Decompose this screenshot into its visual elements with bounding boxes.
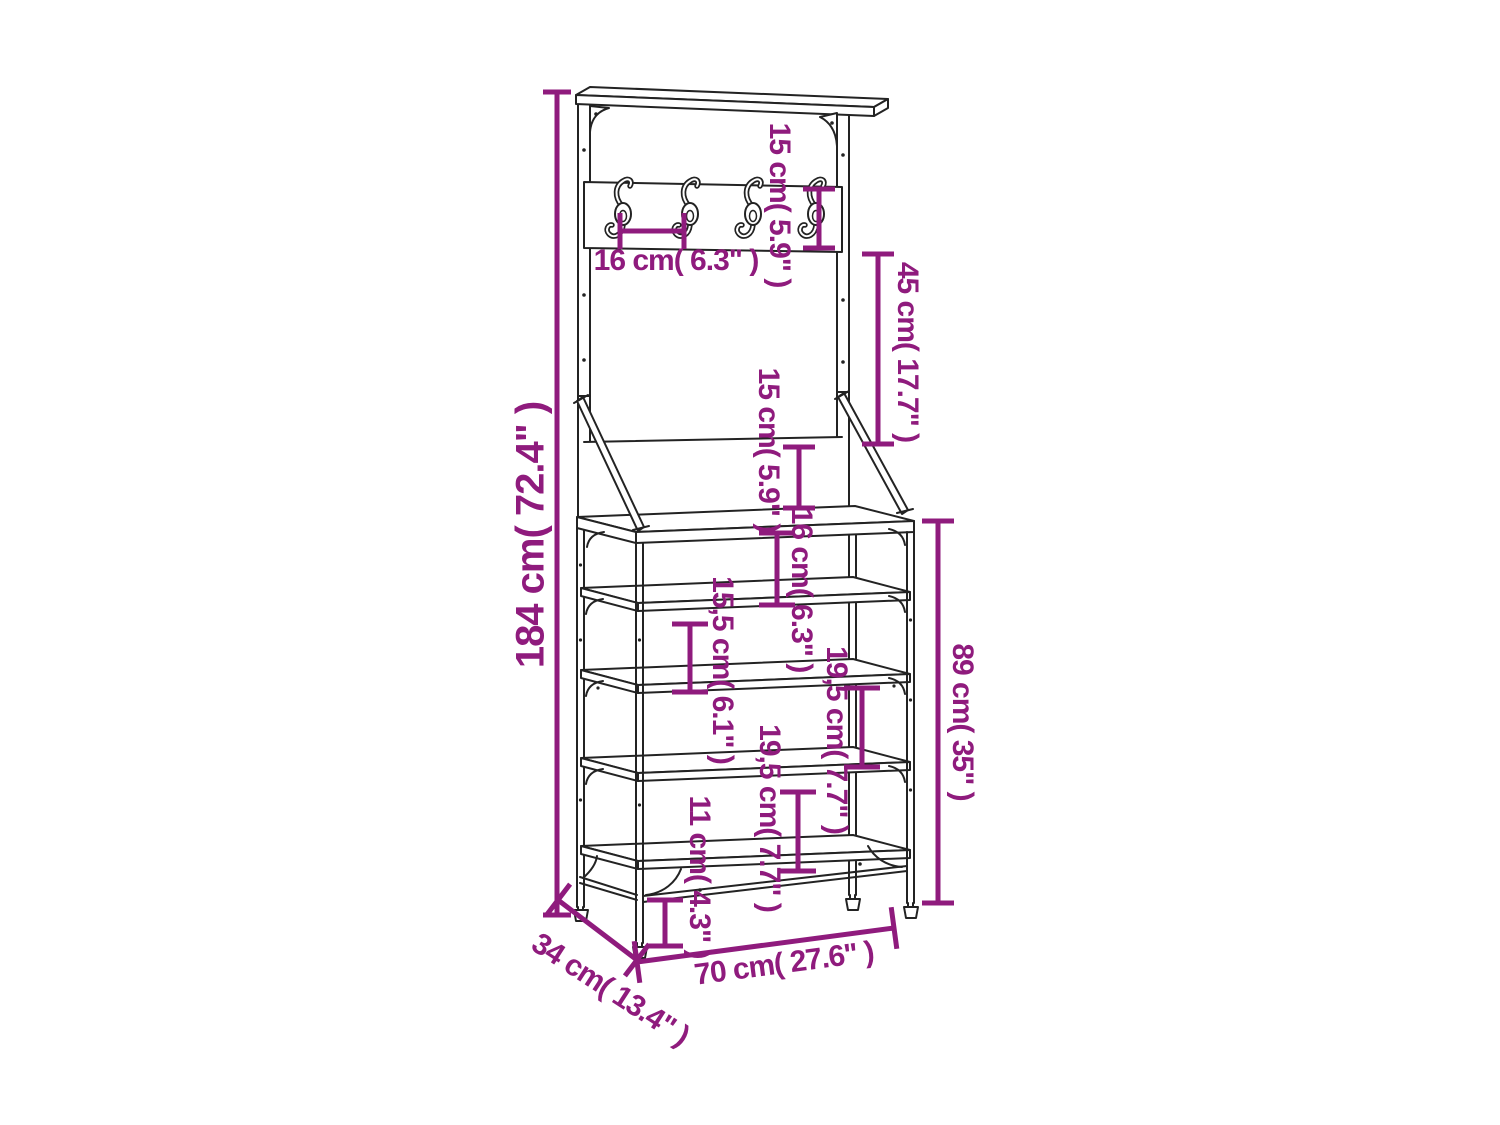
dim-label-table-to-shelf: 16 cm( 6.3" ) bbox=[784, 508, 818, 673]
shelf-bracket-left bbox=[590, 106, 609, 132]
dim-label-shelf-gap-2: 19,5 cm( 7.7" ) bbox=[819, 646, 853, 834]
dim-label-shelf-gap-3: 19,5 cm( 7.7" ) bbox=[752, 724, 786, 912]
shelf-1 bbox=[581, 577, 910, 614]
dim-line-foot-height bbox=[647, 900, 683, 946]
shelf-bracket-right bbox=[820, 113, 837, 146]
leg-front-right bbox=[907, 532, 914, 903]
furniture-group bbox=[574, 87, 918, 958]
dim-label-rack-height: 89 cm( 35" ) bbox=[945, 643, 979, 800]
dim-label-hook-spacing: 16 cm( 6.3" ) bbox=[594, 244, 759, 278]
top-shelf bbox=[576, 87, 888, 146]
dim-label-hook-board-height: 15 cm( 5.9" ) bbox=[762, 123, 796, 288]
dim-label-total-height: 184 cm( 72.4" ) bbox=[509, 402, 554, 668]
dim-label-shelf-gap-1: 15,5 cm( 6.1" ) bbox=[705, 576, 739, 764]
dim-label-frame-gap: 45 cm( 17.7" ) bbox=[890, 262, 924, 442]
diagram-canvas: 184 cm( 72.4" ) 15 cm( 5.9" ) 16 cm( 6.3… bbox=[0, 0, 1500, 1125]
dim-label-foot-height: 11 cm( 4.3" ) bbox=[682, 796, 716, 959]
dim-label-panel-height: 15 cm( 5.9" ) bbox=[751, 368, 785, 533]
